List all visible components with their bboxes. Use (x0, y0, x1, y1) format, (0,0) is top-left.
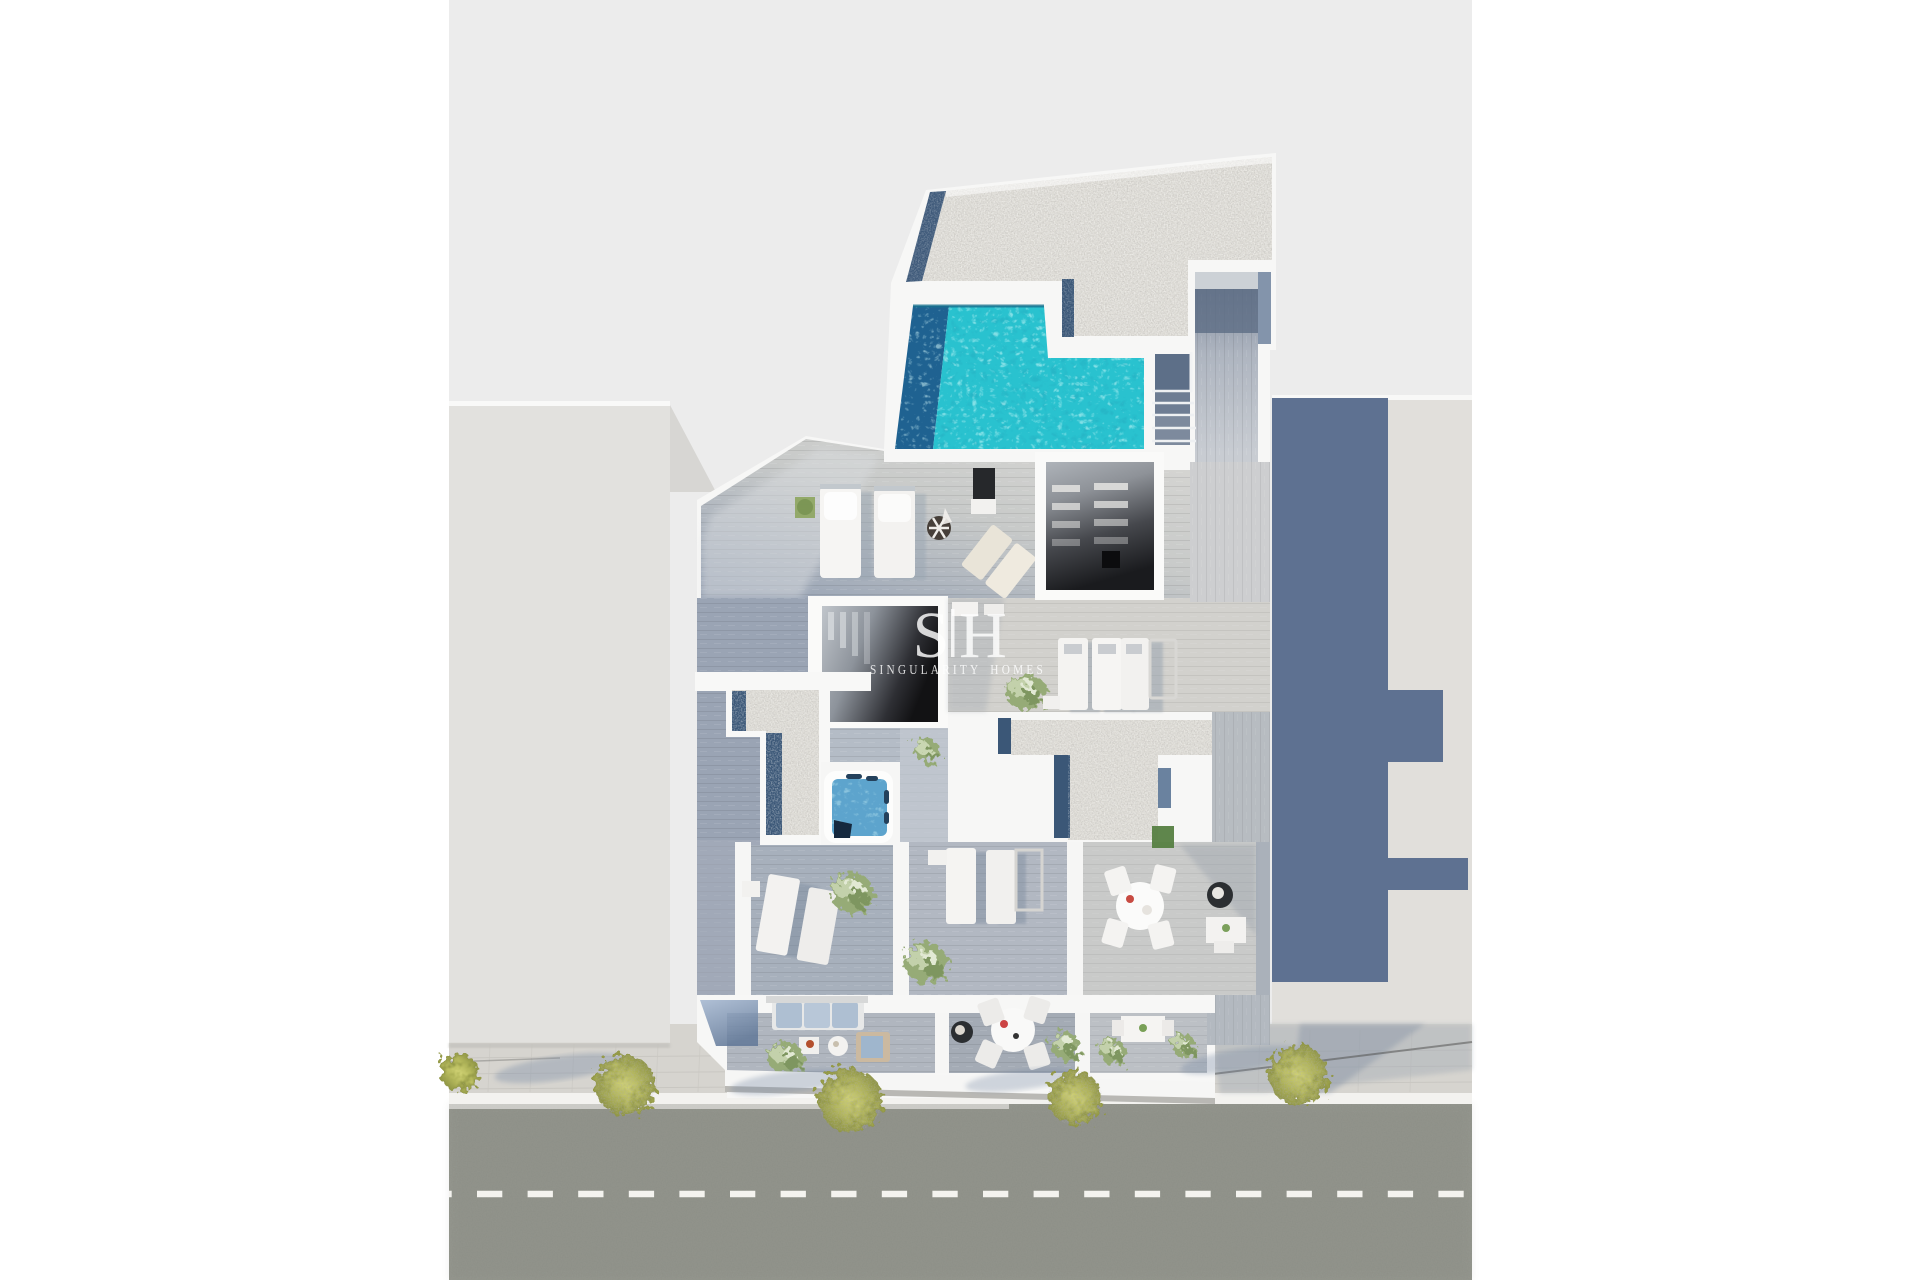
svg-text:SINGULARITY HOMES: SINGULARITY HOMES (870, 663, 1046, 678)
svg-text:S: S (913, 599, 950, 672)
svg-text:H: H (959, 599, 1007, 672)
